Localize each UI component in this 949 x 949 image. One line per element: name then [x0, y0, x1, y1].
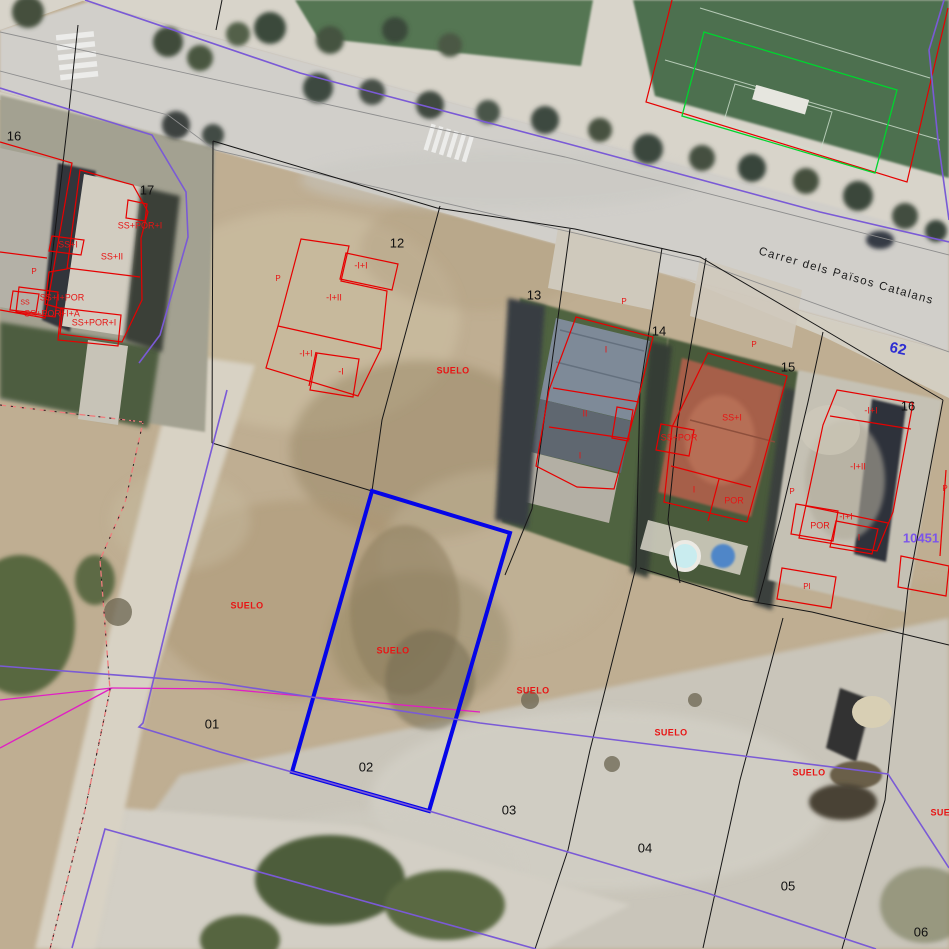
map-labels-layer: Carrer dels Països Catalans 62 10451 161…	[0, 0, 949, 949]
building-annotation-label: POR	[724, 497, 744, 506]
street-name-label: Carrer dels Països Catalans	[757, 246, 935, 307]
building-annotation-label: SS+POR+I	[72, 319, 117, 328]
parcel-number-label: 05	[781, 880, 795, 893]
building-annotation-label: SS+I	[58, 241, 78, 250]
building-annotation-label: I	[693, 486, 696, 495]
parcel-number-label: 03	[502, 804, 516, 817]
parcel-number-label: 14	[652, 325, 666, 338]
map-ref-62: 62	[888, 340, 907, 358]
suelo-label: SUELO	[792, 769, 825, 778]
map-ref-10451: 10451	[903, 532, 939, 545]
parcel-number-label: 12	[390, 237, 404, 250]
building-annotation-label: SS+II	[101, 253, 123, 262]
building-annotation-label: SS+I	[722, 414, 742, 423]
parcel-number-label: 06	[914, 926, 928, 939]
parcel-number-label: 13	[527, 289, 541, 302]
building-annotation-label: -I+I	[864, 407, 877, 416]
parcel-number-label: 16	[7, 130, 21, 143]
parcel-number-label: 17	[140, 184, 154, 197]
building-annotation-label: II	[582, 410, 587, 419]
parcel-number-label: 16	[901, 400, 915, 413]
building-annotation-label: -I+I	[299, 350, 312, 359]
suelo-label: SUELO	[930, 809, 949, 818]
building-annotation-label: P	[275, 275, 280, 283]
building-annotation-label: P	[789, 488, 794, 496]
building-annotation-label: SS+POR	[661, 434, 698, 443]
building-annotation-label: I	[605, 346, 608, 355]
cadastral-map-viewport[interactable]: Carrer dels Països Catalans 62 10451 161…	[0, 0, 949, 949]
parcel-number-label: 15	[781, 361, 795, 374]
building-annotation-label: P	[31, 268, 36, 276]
suelo-label: SUELO	[516, 687, 549, 696]
building-annotation-label: P	[621, 298, 626, 306]
building-annotation-label: -I	[338, 368, 344, 377]
building-annotation-label: SS	[20, 300, 29, 307]
building-annotation-label: SS+I+POR	[40, 294, 85, 303]
building-annotation-label: -I+I	[839, 513, 852, 522]
building-annotation-label: PI	[803, 583, 811, 591]
suelo-label: SUELO	[376, 647, 409, 656]
parcel-number-label: 02	[359, 761, 373, 774]
building-annotation-label: I	[579, 452, 582, 461]
suelo-label: SUELO	[436, 367, 469, 376]
building-annotation-label: -I+I	[354, 262, 367, 271]
building-annotation-label: POR	[810, 522, 830, 531]
suelo-label: SUELO	[654, 729, 687, 738]
parcel-number-label: 04	[638, 842, 652, 855]
building-annotation-label: -I+II	[850, 463, 866, 472]
building-annotation-label: P	[942, 485, 947, 493]
building-annotation-label: I	[858, 534, 861, 543]
suelo-label: SUELO	[230, 602, 263, 611]
parcel-number-label: 01	[205, 718, 219, 731]
building-annotation-label: P	[751, 341, 756, 349]
building-annotation-label: -I+II	[326, 294, 342, 303]
building-annotation-label: SS+POR+I	[118, 222, 163, 231]
